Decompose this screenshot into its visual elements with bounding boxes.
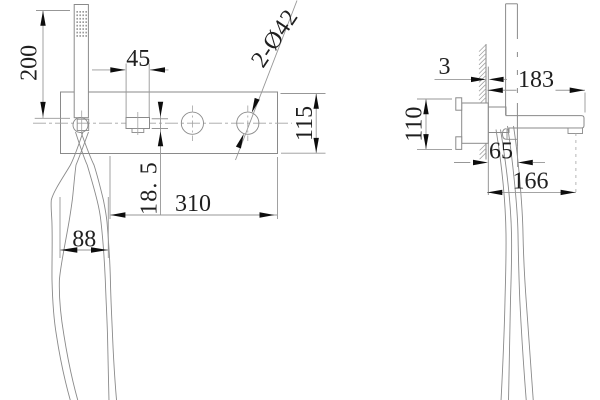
svg-text:310: 310 [175, 191, 211, 217]
svg-text:3: 3 [439, 54, 451, 80]
svg-text:18. 5: 18. 5 [137, 161, 163, 215]
svg-text:200: 200 [16, 45, 42, 81]
svg-text:45: 45 [126, 46, 150, 72]
svg-text:115: 115 [292, 106, 318, 141]
svg-text:166: 166 [513, 169, 549, 195]
svg-text:88: 88 [72, 227, 96, 253]
svg-text:2-Ø42: 2-Ø42 [246, 5, 303, 72]
svg-text:110: 110 [401, 107, 427, 142]
svg-text:183: 183 [518, 67, 554, 93]
svg-text:65: 65 [489, 139, 513, 165]
